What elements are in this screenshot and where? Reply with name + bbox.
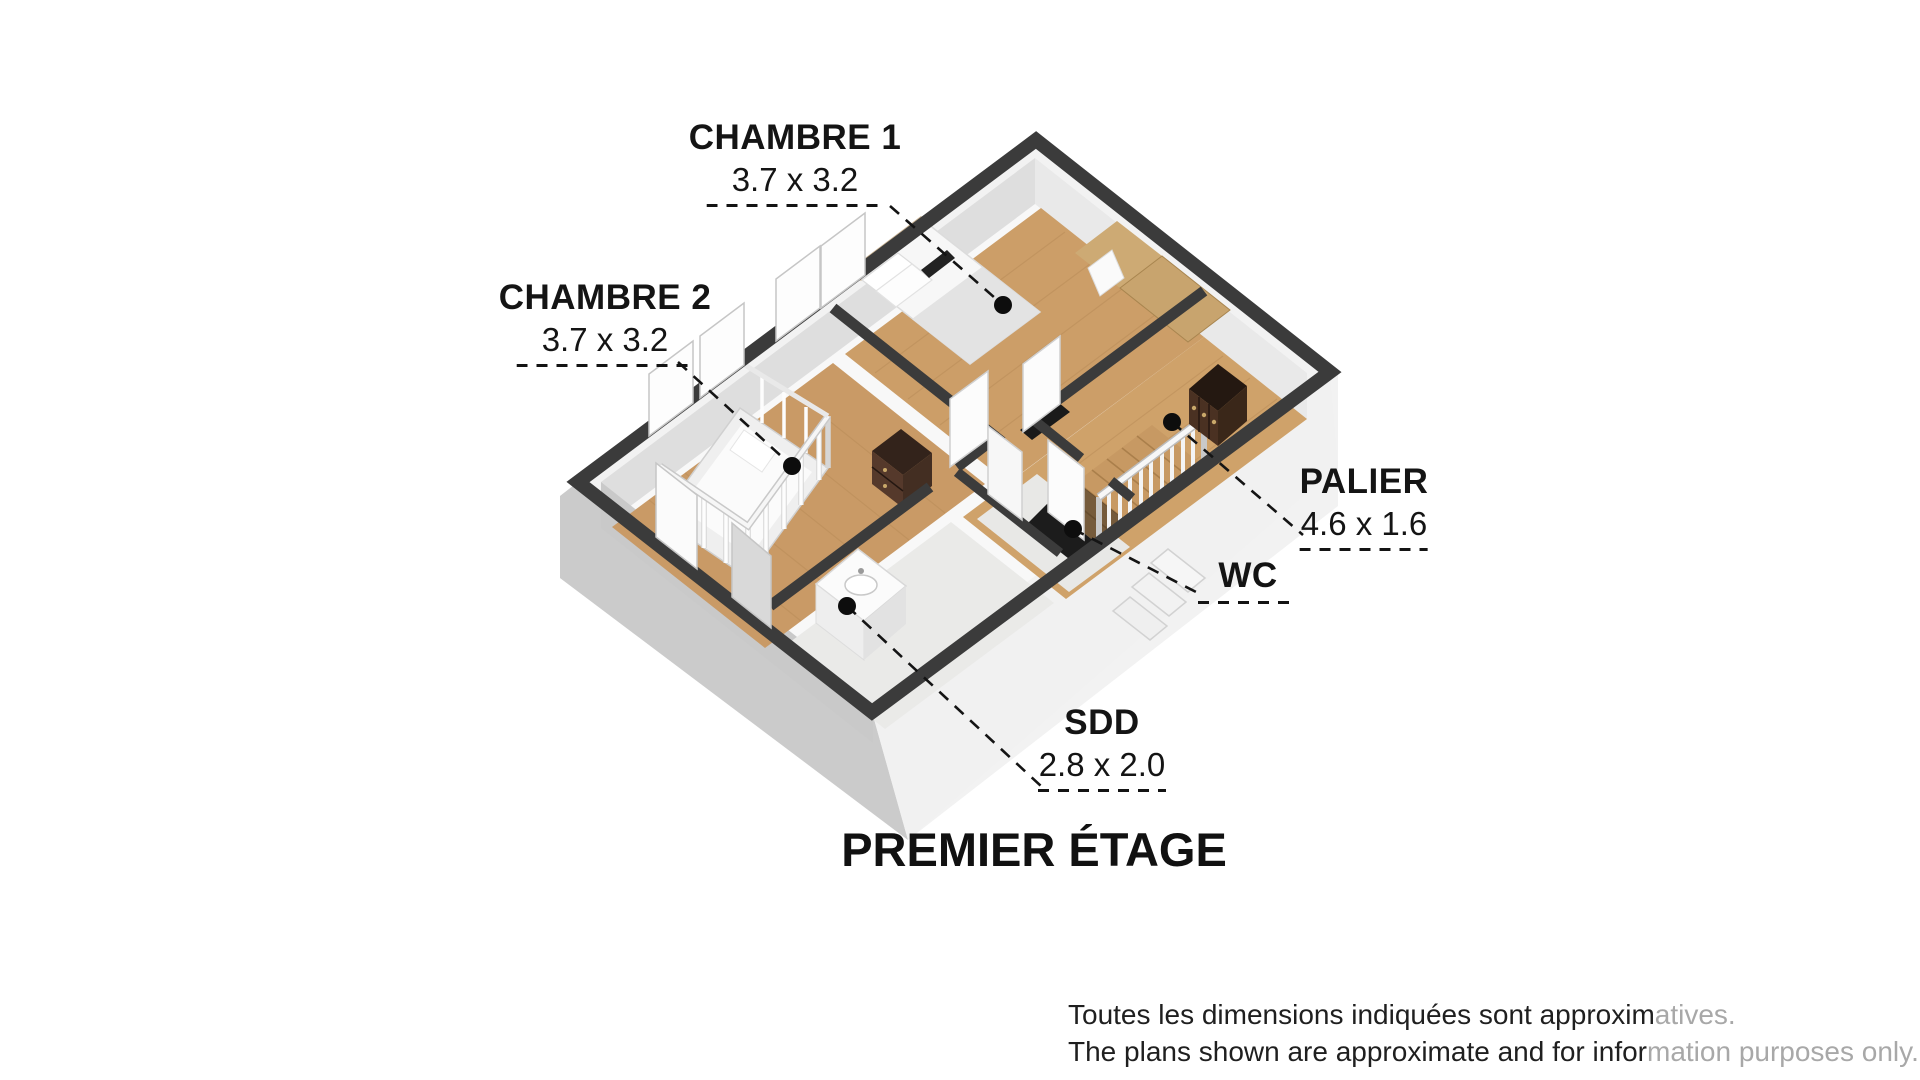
- room-label: SDD: [1064, 703, 1139, 743]
- floor-title: PREMIER ÉTAGE: [841, 822, 1227, 877]
- callout-palier: PALIER 4.6 x 1.6: [1300, 462, 1429, 551]
- room-label: PALIER: [1300, 462, 1429, 502]
- faucet: [858, 568, 864, 574]
- dashed-underline: [707, 204, 883, 207]
- floorplan-page: CHAMBRE 1 3.7 x 3.2 CHAMBRE 2 3.7 x 3.2 …: [0, 0, 1920, 1080]
- dot-chambre-1: [994, 296, 1012, 314]
- callout-chambre-2: CHAMBRE 2 3.7 x 3.2: [499, 278, 712, 367]
- room-label: WC: [1218, 556, 1277, 596]
- callout-sdd: SDD 2.8 x 2.0: [1038, 703, 1166, 792]
- callout-wc: WC: [1198, 556, 1298, 604]
- dot-wc: [1064, 520, 1082, 538]
- dot-chambre-2: [783, 457, 801, 475]
- dashed-underline: [517, 364, 693, 367]
- dashed-underline: [1300, 548, 1428, 551]
- callout-chambre-1: CHAMBRE 1 3.7 x 3.2: [689, 118, 902, 207]
- room-dimensions: 4.6 x 1.6: [1301, 505, 1428, 543]
- sink-basin: [845, 575, 877, 595]
- floorplan-3d-render: [0, 0, 1920, 1080]
- dashed-underline: [1198, 601, 1298, 604]
- disclaimer-line-en: The plans shown are approximate and for …: [1068, 1033, 1919, 1070]
- disclaimer-text: Toutes les dimensions indiquées sont app…: [1068, 996, 1919, 1070]
- dashed-underline: [1038, 789, 1166, 792]
- room-dimensions: 3.7 x 3.2: [542, 321, 669, 359]
- disclaimer-line-fr: Toutes les dimensions indiquées sont app…: [1068, 996, 1919, 1033]
- room-dimensions: 2.8 x 2.0: [1039, 746, 1166, 784]
- dot-palier: [1163, 413, 1181, 431]
- room-label: CHAMBRE 1: [689, 118, 902, 158]
- room-label: CHAMBRE 2: [499, 278, 712, 318]
- dot-sdd: [838, 597, 856, 615]
- room-dimensions: 3.7 x 3.2: [732, 161, 859, 199]
